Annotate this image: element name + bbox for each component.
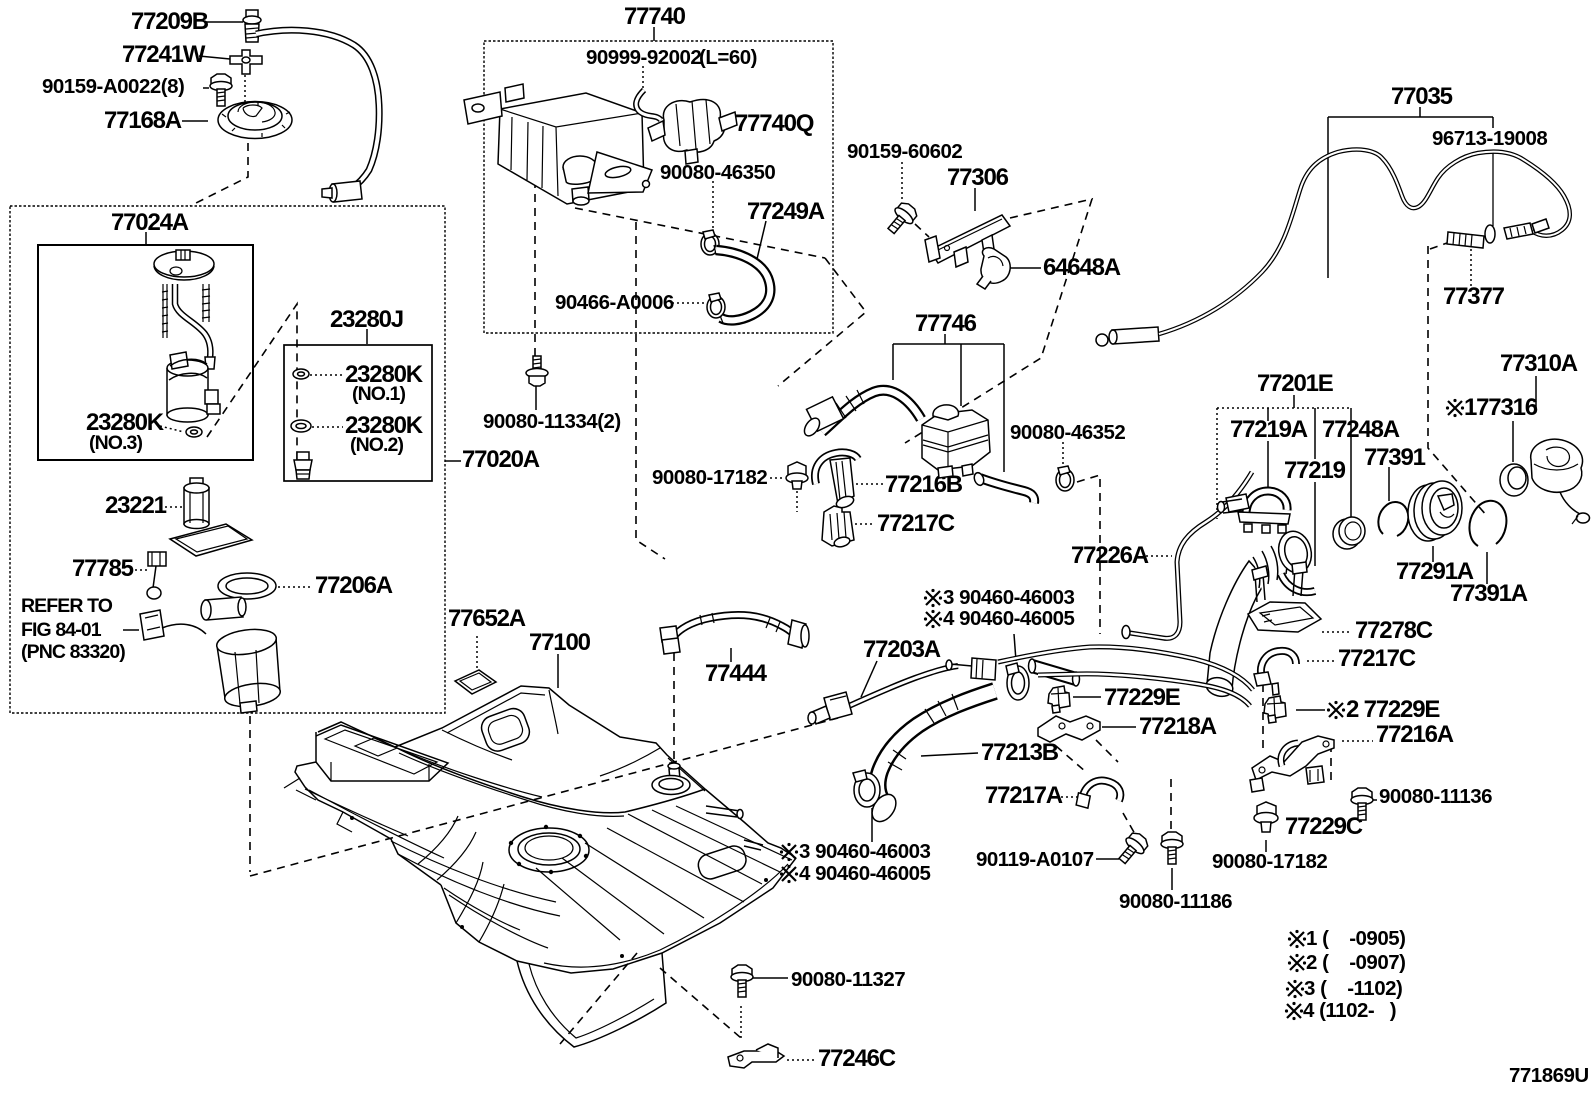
svg-text:77020A: 77020A: [462, 446, 540, 473]
svg-text:90080-46352: 90080-46352: [1010, 421, 1125, 444]
svg-text:90080-11136: 90080-11136: [1379, 785, 1492, 808]
svg-text:4 (1102- ): 4 (1102- ): [1303, 999, 1396, 1022]
svg-text:77216A: 77216A: [1376, 721, 1454, 748]
svg-text:77226A: 77226A: [1071, 542, 1149, 569]
svg-text:77219A: 77219A: [1230, 416, 1308, 443]
svg-text:77217A: 77217A: [985, 782, 1063, 809]
svg-text:77740: 77740: [624, 3, 686, 30]
svg-text:77024A: 77024A: [111, 209, 189, 236]
svg-text:2 ( -0907): 2 ( -0907): [1306, 951, 1405, 974]
svg-text:4 90460-46005: 4 90460-46005: [943, 607, 1075, 630]
svg-text:77229E: 77229E: [1104, 684, 1181, 711]
svg-text:90080-46350: 90080-46350: [660, 161, 775, 184]
svg-text:3 90460-46003: 3 90460-46003: [799, 840, 931, 863]
svg-text:77219: 77219: [1284, 457, 1346, 484]
svg-text:2 77229E: 2 77229E: [1346, 696, 1440, 723]
svg-text:77246C: 77246C: [818, 1045, 896, 1072]
svg-text:77213B: 77213B: [981, 739, 1059, 766]
svg-text:96713-19008: 96713-19008: [1432, 127, 1547, 150]
svg-text:77206A: 77206A: [315, 572, 393, 599]
svg-text:(L=60): (L=60): [699, 46, 757, 69]
svg-text:64648A: 64648A: [1043, 254, 1121, 281]
svg-text:77035: 77035: [1391, 83, 1453, 110]
svg-text:77229C: 77229C: [1285, 813, 1363, 840]
svg-text:4 90460-46005: 4 90460-46005: [799, 862, 931, 885]
svg-text:REFER TO: REFER TO: [21, 595, 113, 617]
svg-text:3 90460-46003: 3 90460-46003: [943, 586, 1075, 609]
svg-text:77306: 77306: [947, 164, 1009, 191]
svg-text:77391A: 77391A: [1450, 580, 1528, 607]
svg-text:77217C: 77217C: [1338, 645, 1416, 672]
svg-text:90159-A0022(8): 90159-A0022(8): [42, 75, 184, 98]
svg-text:(NO.2): (NO.2): [350, 434, 404, 456]
svg-text:FIG 84-01: FIG 84-01: [21, 619, 102, 641]
svg-text:90159-60602: 90159-60602: [847, 140, 962, 163]
svg-text:77249A: 77249A: [747, 198, 825, 225]
svg-text:90080-17182: 90080-17182: [652, 466, 767, 489]
svg-text:77241W: 77241W: [122, 41, 206, 68]
svg-text:77217C: 77217C: [877, 510, 955, 537]
svg-text:90119-A0107: 90119-A0107: [976, 848, 1094, 871]
svg-text:90999-92002: 90999-92002: [586, 46, 701, 69]
svg-text:77201E: 77201E: [1257, 370, 1334, 397]
svg-text:3 ( -1102): 3 ( -1102): [1304, 977, 1402, 1000]
svg-text:77391: 77391: [1364, 444, 1426, 471]
svg-text:177316: 177316: [1464, 394, 1538, 421]
svg-text:77248A: 77248A: [1322, 416, 1400, 443]
svg-text:(NO.3): (NO.3): [89, 432, 143, 454]
svg-text:77746: 77746: [915, 310, 977, 337]
svg-text:23280J: 23280J: [330, 306, 403, 333]
svg-text:77209B: 77209B: [131, 8, 209, 35]
svg-text:77218A: 77218A: [1139, 713, 1217, 740]
svg-text:(PNC 83320): (PNC 83320): [21, 641, 125, 663]
svg-text:77100: 77100: [529, 629, 591, 656]
svg-text:77310A: 77310A: [1500, 350, 1578, 377]
svg-text:771869U: 771869U: [1509, 1064, 1589, 1087]
svg-text:77740Q: 77740Q: [735, 110, 814, 137]
svg-text:77203A: 77203A: [863, 636, 941, 663]
svg-text:90080-11186: 90080-11186: [1119, 890, 1232, 913]
svg-text:(NO.1): (NO.1): [352, 383, 406, 405]
svg-text:90080-11334(2): 90080-11334(2): [483, 410, 621, 433]
svg-text:90466-A0006: 90466-A0006: [555, 291, 674, 314]
svg-text:77168A: 77168A: [104, 107, 182, 134]
svg-text:23221: 23221: [105, 492, 167, 519]
svg-text:77444: 77444: [705, 660, 768, 687]
svg-text:90080-17182: 90080-17182: [1212, 850, 1327, 873]
svg-text:77377: 77377: [1443, 283, 1505, 310]
svg-text:77278C: 77278C: [1355, 617, 1433, 644]
svg-text:1 ( -0905): 1 ( -0905): [1306, 927, 1405, 950]
svg-text:77785: 77785: [72, 555, 134, 582]
svg-text:90080-11327: 90080-11327: [791, 968, 905, 991]
svg-text:77652A: 77652A: [448, 605, 526, 632]
